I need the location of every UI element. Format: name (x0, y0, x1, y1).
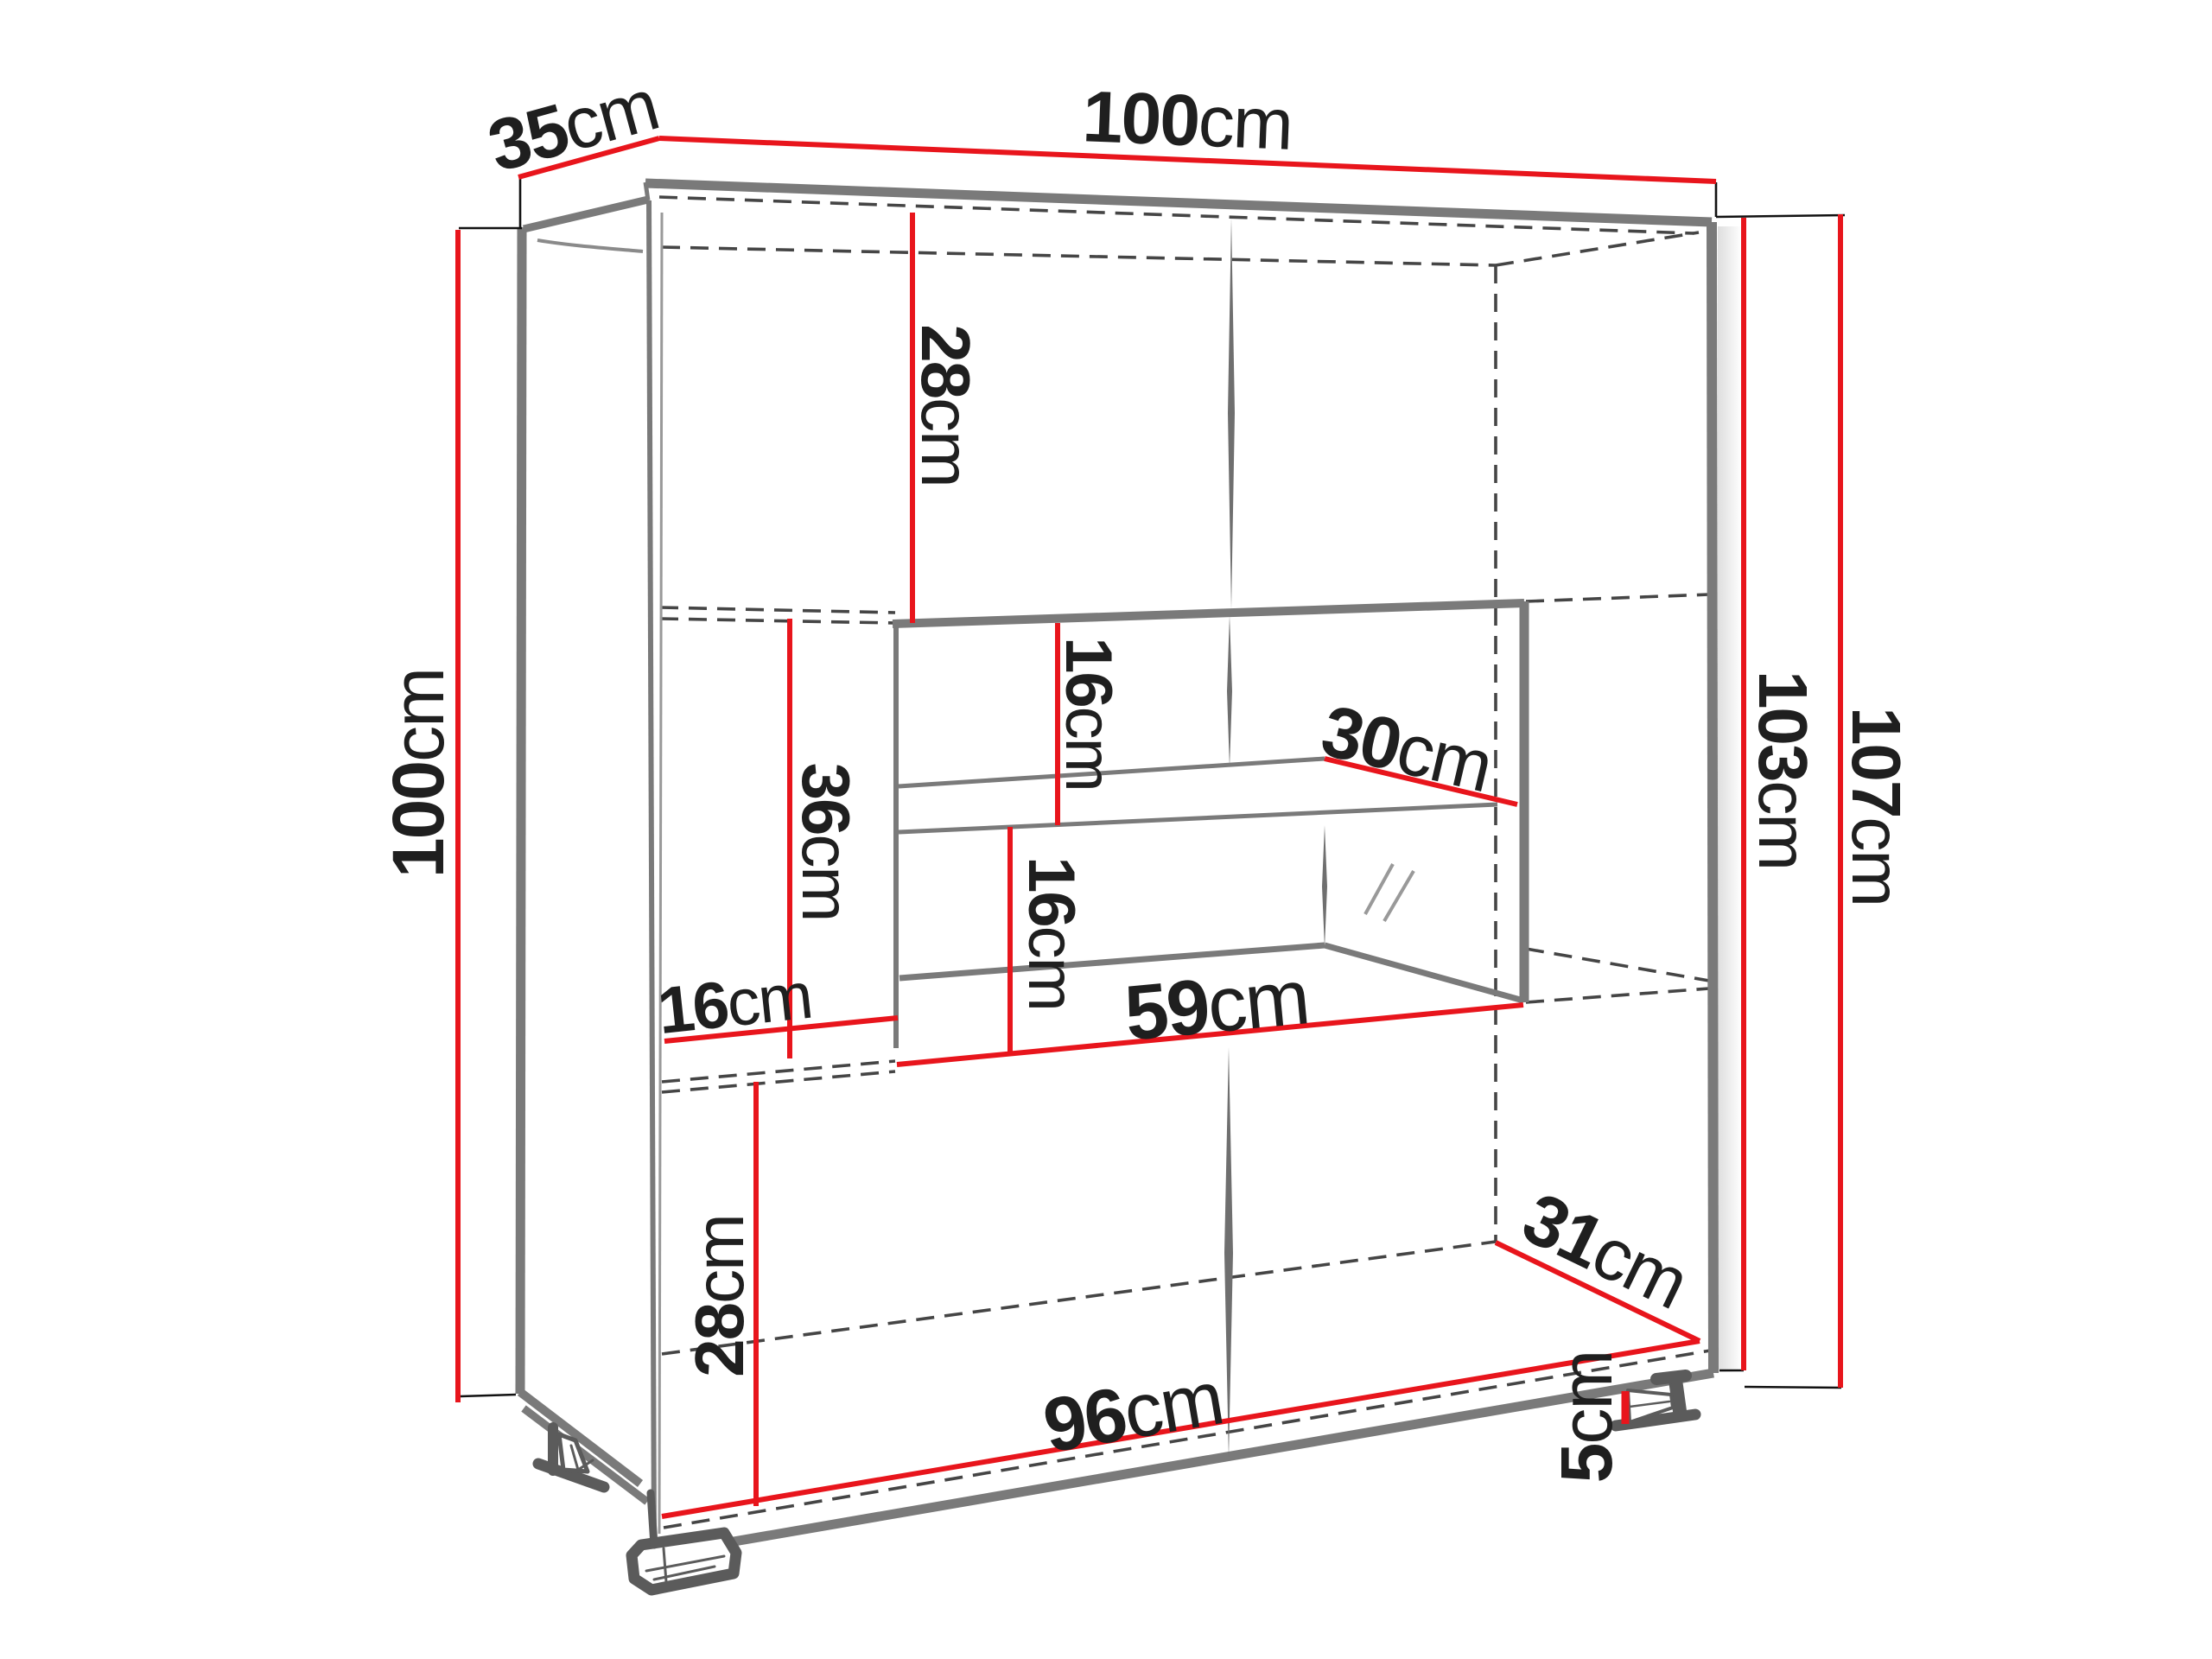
svg-text:100cm: 100cm (1081, 75, 1294, 165)
svg-text:5cm: 5cm (1546, 1351, 1627, 1484)
svg-text:16cm: 16cm (1052, 637, 1126, 791)
svg-text:36cm: 36cm (788, 763, 864, 921)
svg-text:107cm: 107cm (1839, 707, 1916, 906)
svg-text:100cm: 100cm (378, 669, 459, 878)
svg-text:28cm: 28cm (681, 1215, 758, 1377)
svg-text:103cm: 103cm (1745, 671, 1822, 869)
svg-text:16cm: 16cm (1015, 856, 1089, 1010)
svg-text:59cm: 59cm (1122, 954, 1313, 1058)
svg-text:28cm: 28cm (908, 324, 985, 486)
